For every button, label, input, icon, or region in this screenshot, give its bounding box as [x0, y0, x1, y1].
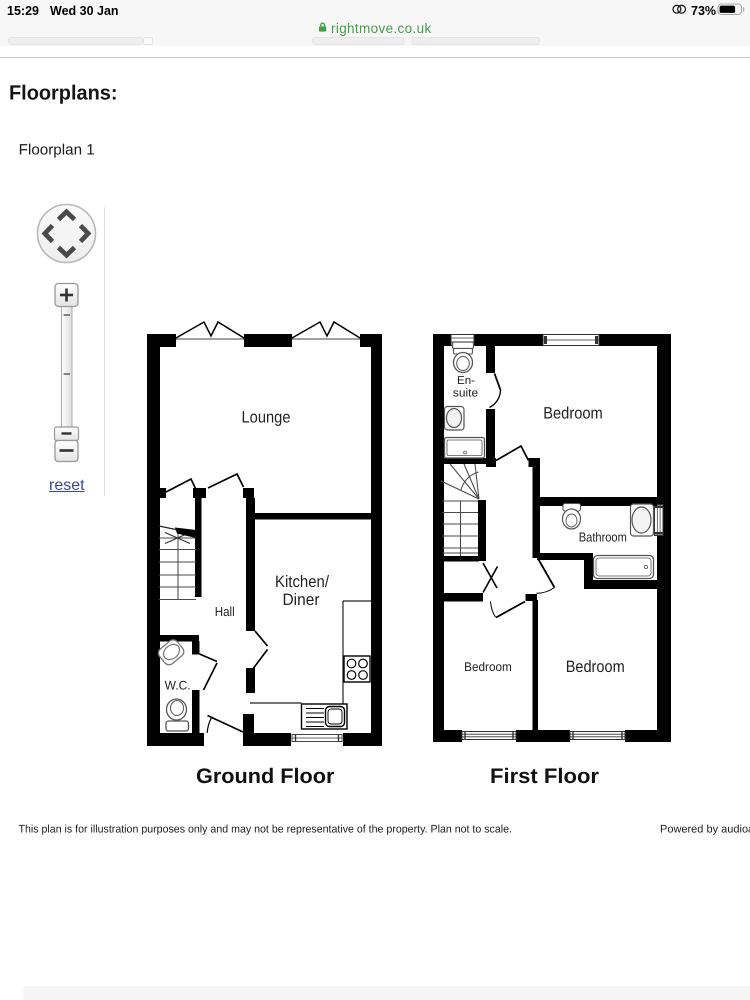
- svg-text:suite: suite: [453, 388, 478, 400]
- svg-text:Diner: Diner: [283, 591, 320, 609]
- svg-text:W.C.: W.C.: [165, 679, 191, 693]
- svg-text:Bedroom: Bedroom: [566, 658, 625, 676]
- svg-text:Hall: Hall: [215, 604, 235, 619]
- svg-text:En-: En-: [457, 375, 475, 387]
- svg-text:Bedroom: Bedroom: [464, 660, 512, 674]
- svg-text:Ground Floor: Ground Floor: [196, 765, 334, 788]
- svg-text:First Floor: First Floor: [490, 765, 599, 788]
- svg-text:This plan is for illustration: This plan is for illustration purposes o…: [19, 824, 513, 836]
- svg-text:Powered by audioagent softwa: Powered by audioagent softwa: [660, 824, 750, 836]
- svg-text:Lounge: Lounge: [242, 409, 291, 427]
- svg-text:Kitchen/: Kitchen/: [275, 573, 329, 591]
- svg-text:Bathroom: Bathroom: [579, 530, 627, 545]
- svg-text:Bedroom: Bedroom: [543, 405, 603, 423]
